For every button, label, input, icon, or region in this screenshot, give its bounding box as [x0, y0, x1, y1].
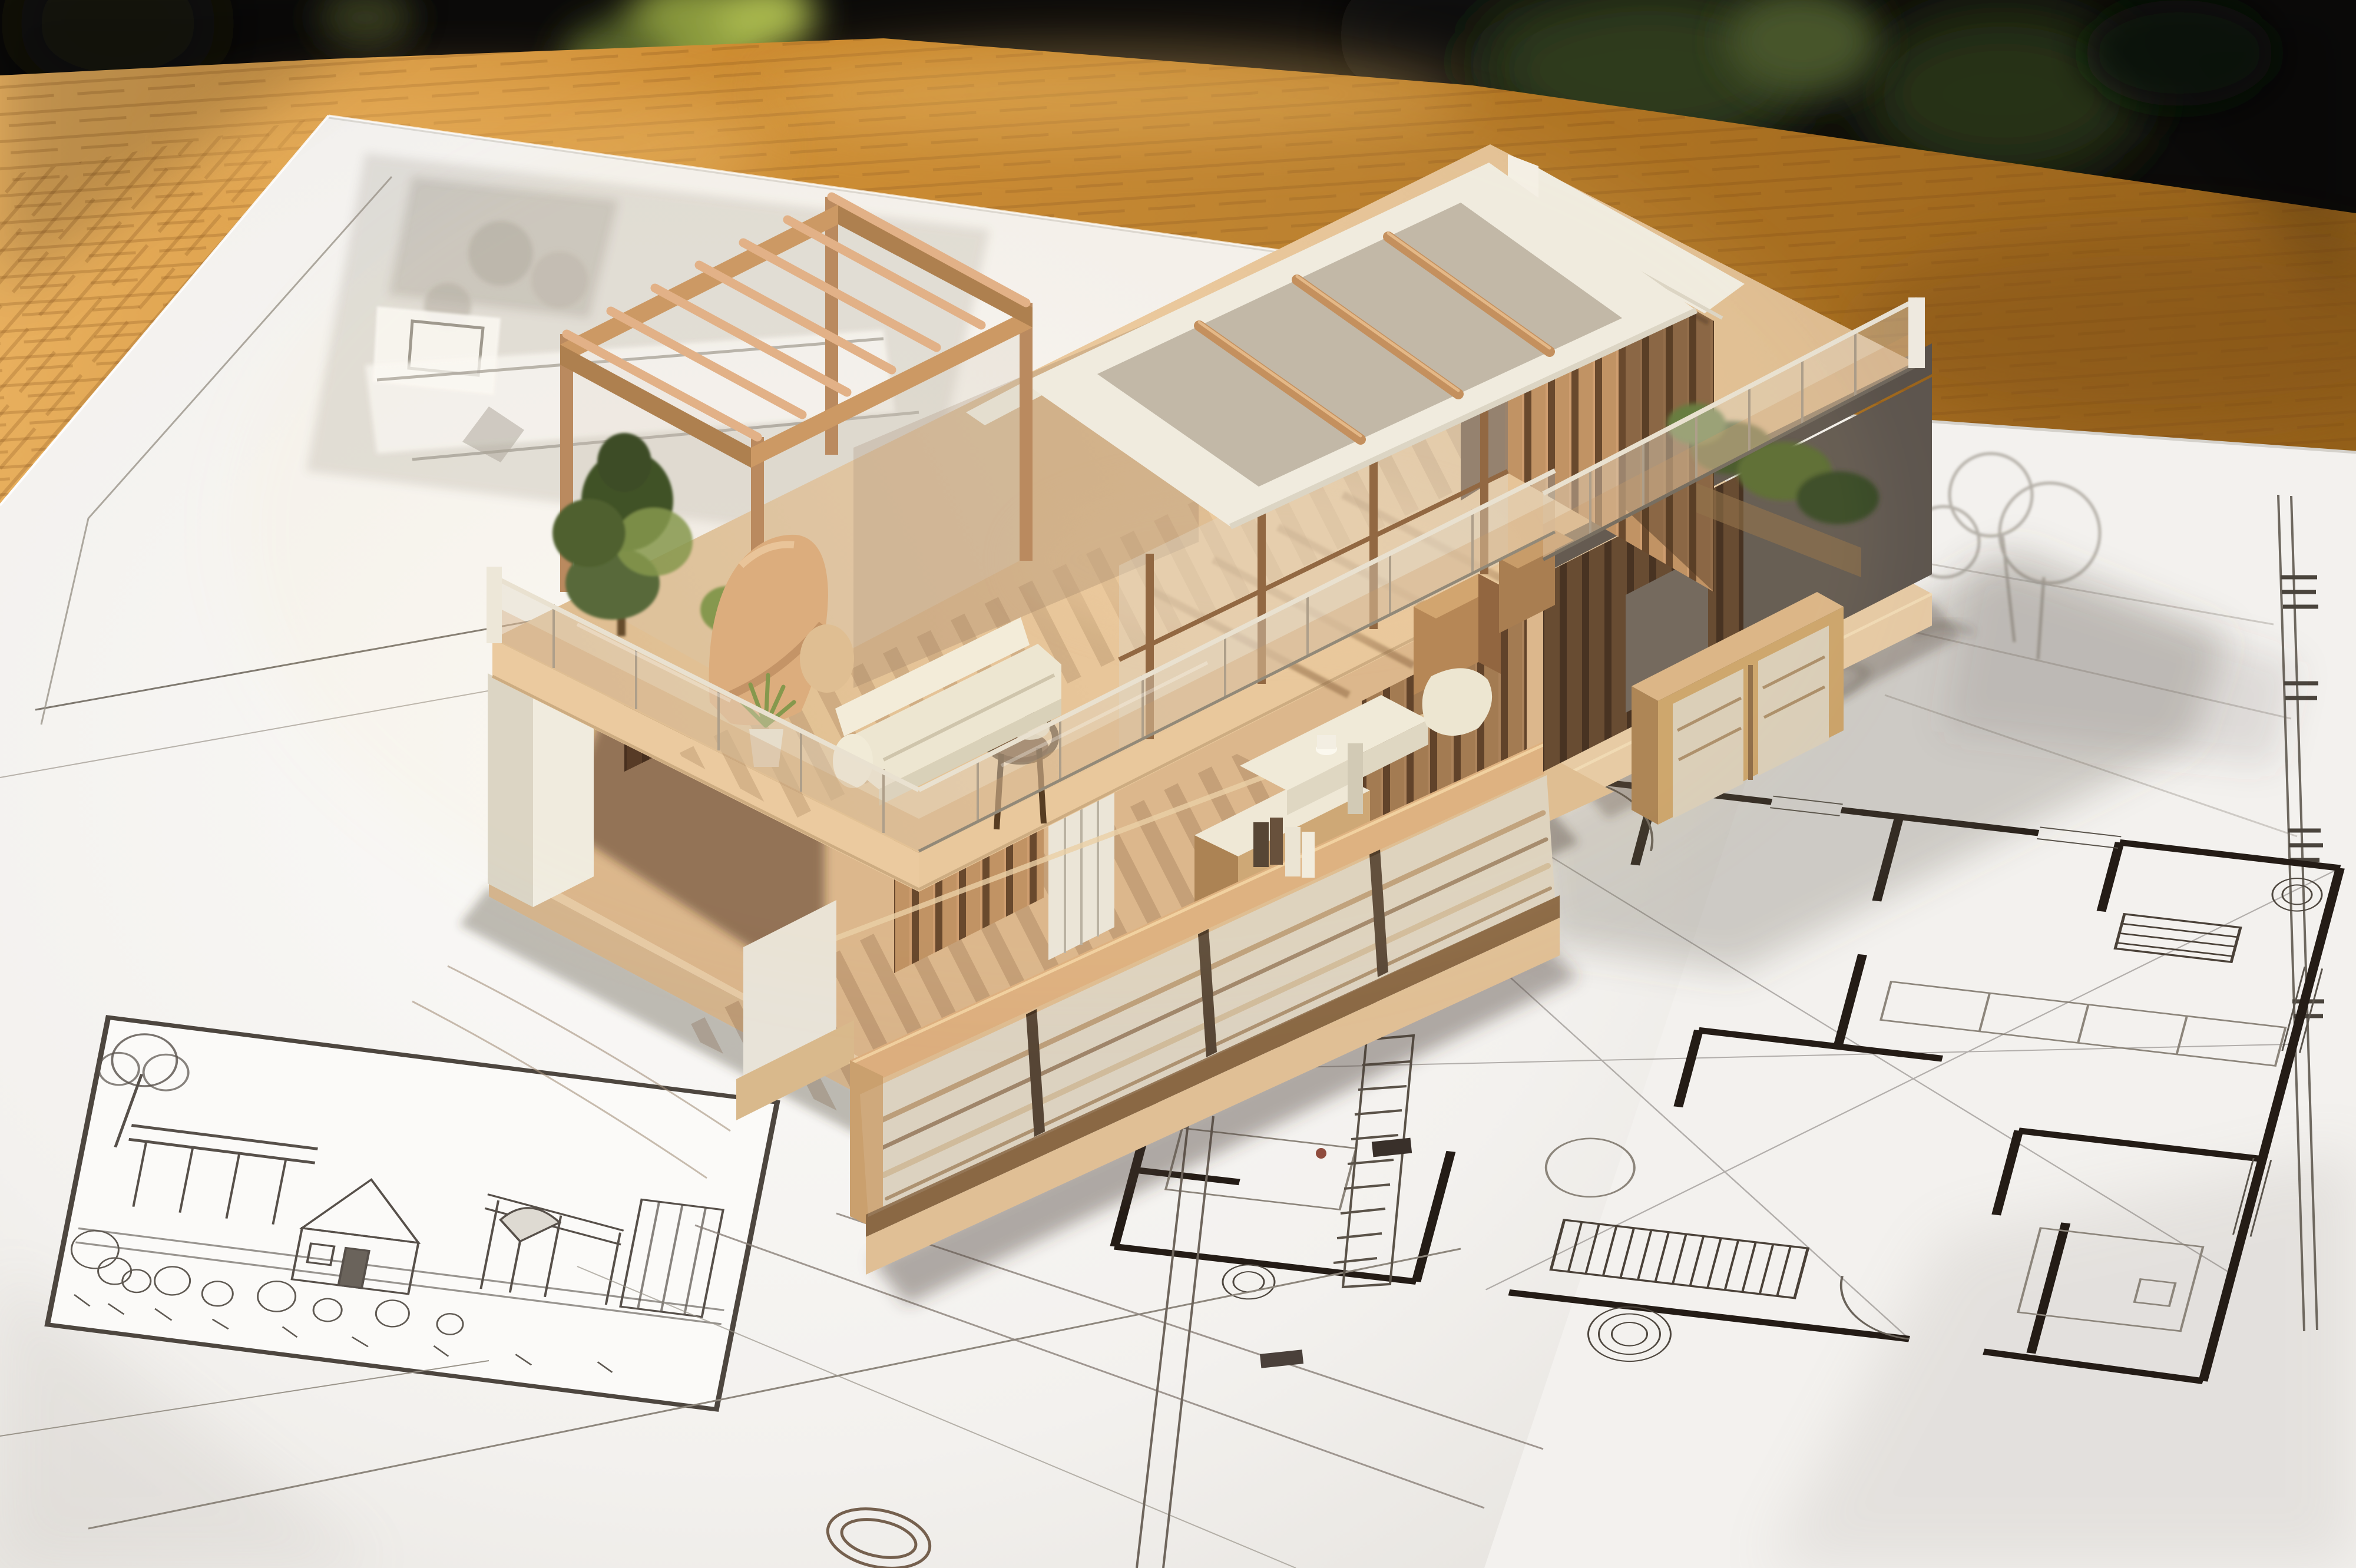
- red-ink-dot: [1316, 1148, 1326, 1159]
- photo-architectural-model-on-blueprints: [0, 0, 2356, 1568]
